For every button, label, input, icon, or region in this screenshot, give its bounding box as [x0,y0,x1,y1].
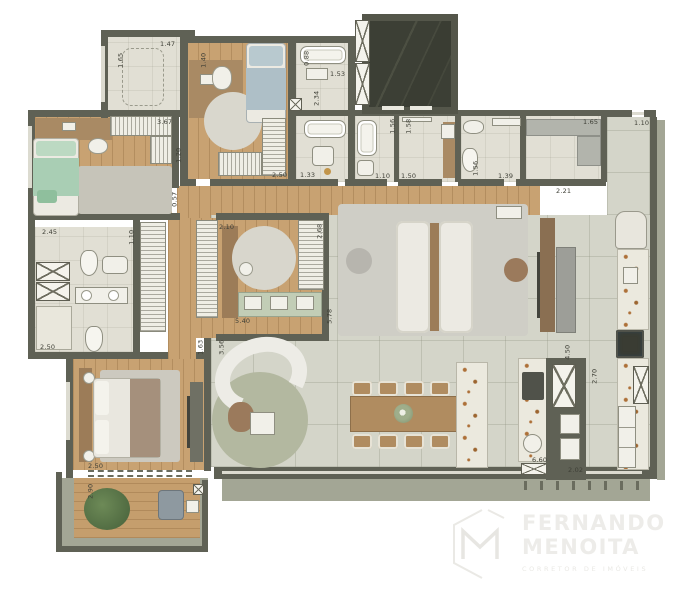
brand-logo: FERNANDO MENOITA CORRETOR DE IMÓVEIS [438,503,666,595]
logo-monogram-icon [446,507,512,581]
dimension-label: 1.53 [330,71,345,78]
logo-tagline: CORRETOR DE IMÓVEIS [522,565,666,573]
dimension-label: 3.67 [157,119,172,126]
dimension-label: 2.45 [42,229,57,236]
floor-plan: 1.651.471.400.881.532.341.561.581.651.10… [0,0,679,600]
dimension-label: 1.39 [498,173,513,180]
dimension-label: 1.40 [200,53,207,68]
dimension-label: 1.58 [405,119,412,134]
dimension-label: 0.88 [303,51,310,66]
dimension-label: 5.40 [235,318,250,325]
dimension-label: 2.50 [40,344,55,351]
dimension-label: 2.50 [88,463,103,470]
dimension-label: 1.56 [389,119,396,134]
dimension-label: 1.63 [197,340,204,355]
dimension-label: 5.78 [326,309,333,324]
dimension-label: 1.20 [175,148,182,163]
dimension-label: 1.33 [300,172,315,179]
dimension-label: 1.10 [128,230,135,245]
dimension-label: 1.10 [634,120,649,127]
dimension-label: 1.65 [117,53,124,68]
dimension-label: 6.60 [532,457,547,464]
dimension-label: 1.10 [375,173,390,180]
dimension-label: 2.90 [87,484,94,499]
dimension-label: 2.02 [568,467,583,474]
dimension-label: 2.70 [591,369,598,384]
logo-name-line2: MENOITA [522,535,666,559]
dimension-label: 4.50 [564,345,571,360]
dimension-label: 3.56 [218,340,225,355]
dimension-label: 2.10 [219,224,234,231]
logo-name-line1: FERNANDO [522,511,666,535]
dimension-label: 2.68 [316,224,323,239]
dimension-label: 1.56 [472,161,479,176]
dimension-label: 1.65 [583,119,598,126]
dimension-label: 0.57 [171,192,178,207]
dimension-label: 1.50 [401,173,416,180]
dimension-label: 2.34 [313,91,320,106]
dimension-label: 2.50 [272,172,287,179]
dimension-label: 1.47 [160,41,175,48]
dimension-label: 2.21 [556,188,571,195]
